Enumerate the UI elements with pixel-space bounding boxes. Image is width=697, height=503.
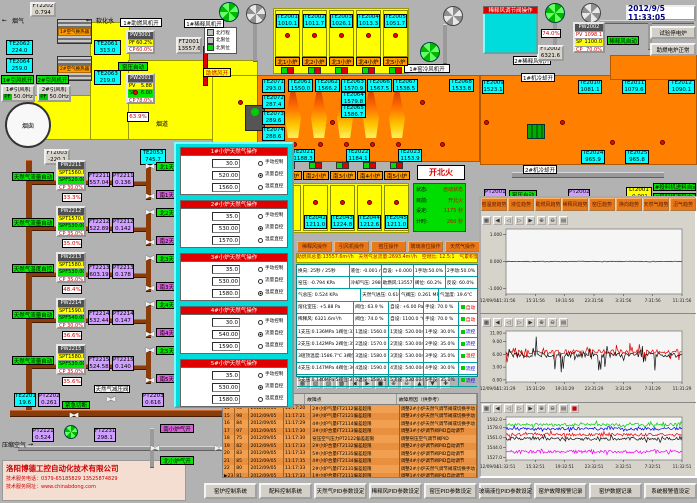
south-port-label: 南5小炉 [384, 171, 410, 180]
alarm-row[interactable]: 16842012/09/0511:17:294#小炉气量FT2114偏差超限调整… [223, 420, 477, 428]
pt2214-indicator: PT22140.147 [112, 310, 134, 325]
sensor-dot [484, 120, 489, 125]
grid-row: 气总压: 0.524 KPa天然气进压: 0.616 MPa气阀压: 0.261… [297, 289, 477, 301]
temperature-trend-chart: 1592.01578.01561.01544.01527.012/09/0411… [480, 414, 696, 478]
alarm-cell: 2012/09/05 [249, 443, 284, 451]
gas-mode-radio-label: 流量自控 [265, 277, 287, 285]
pt2203-indicator: PT22030.616 [142, 393, 164, 407]
gas-field-input[interactable]: 520.00 [212, 171, 240, 180]
alarm-cell: 2#小炉气量FT2112偏差超限 [311, 405, 399, 413]
alarm-row[interactable]: 17972012/09/0511:17:303#小炉合量FT2113偏差超限调整… [223, 428, 477, 436]
gas-mode-radio[interactable] [258, 373, 263, 378]
op-button[interactable]: 窑压操作 [371, 241, 406, 252]
grid-cell: 2流设: 530.00m³/h [389, 338, 424, 349]
gas-field-input[interactable]: 35.0 [212, 371, 240, 380]
grid-cell: 阀位: 74.0 % [354, 314, 389, 325]
gas-valve-icon[interactable]: ▶◀ [143, 330, 155, 338]
te2063-indicator: TE20631570.9 [341, 79, 366, 92]
sensor-dot [133, 90, 138, 95]
chart-toolbar-icon[interactable]: ▶ [526, 318, 535, 327]
sensor-dot [370, 142, 375, 147]
gas-mode-radio[interactable] [258, 226, 263, 231]
pw2213-faceplate: PW2213SPT1580.0SPF530.00CP35.0% [56, 252, 86, 283]
pipe [443, 24, 447, 64]
svg-text:7:31:29: 7:31:29 [645, 386, 661, 391]
svg-text:15:32:51: 15:32:51 [526, 464, 545, 469]
svg-text:23:31:29: 23:31:29 [585, 386, 604, 391]
gas-mode-radio[interactable] [258, 320, 263, 325]
gas-valve-icon[interactable]: ▶◀ [143, 208, 155, 216]
alarm-row[interactable]: 19822012/09/0511:17:332#小炉合量FT2132偏差超限调整… [223, 443, 477, 451]
chart-toolbar-icon[interactable]: ▷ [515, 404, 524, 413]
chart-toolbar-icon[interactable]: ▦ [482, 318, 491, 327]
alarm-row[interactable]: 21852012/09/0511:17:354#小炉合量FT2134偏差超限调整… [223, 458, 477, 466]
gas-panel-title: 4#小炉天然气操作 [180, 306, 288, 315]
port-indicator [309, 162, 322, 169]
grid-cell: 5手设: 35.0% [424, 375, 459, 386]
grid-cell: 1温设: 1560.0 ℃ [354, 326, 389, 337]
nav-button[interactable]: 稀释风PID参数设定 [369, 483, 422, 499]
op-button[interactable]: 玻璃液位操作 [408, 241, 443, 252]
nav-button[interactable]: 窑炉数据记录 [589, 483, 642, 499]
chart-toolbar-icon[interactable]: ▤ [559, 318, 568, 327]
alarm-cell: 11:17:33 [284, 473, 311, 479]
totals-bar: 助燃风总量:13557.6m³/h 天然气总流量:2693.4m³/h 空燃比:… [296, 253, 478, 263]
svg-text:6.00: 6.00 [492, 352, 502, 358]
fan-icon [443, 6, 463, 26]
alarm-cell: 调整5#小炉调节阀PID自动调节 [400, 450, 477, 458]
alarm-cell: 11:17:30 [284, 428, 311, 436]
nav-button[interactable]: 配料控制系统 [259, 483, 312, 499]
air-valve-icon[interactable]: ▶◀ [148, 444, 160, 452]
chart-toolbar-icon[interactable]: ◁ [504, 216, 513, 225]
gas-mode-radio[interactable] [258, 332, 263, 337]
svg-text:11.00: 11.00 [490, 331, 503, 337]
gas-mode-radio[interactable] [258, 344, 263, 349]
svg-text:7:32:51: 7:32:51 [645, 464, 661, 469]
trend-button[interactable]: 助燃风趋势 [535, 198, 561, 211]
trend-button[interactable]: 液位趋势 [508, 198, 534, 211]
te2001-indicator: TE20011010.1 [276, 14, 299, 28]
alarm-cell: 2012/09/05 [249, 435, 284, 443]
comb-air-on: 助燃风开 [203, 68, 231, 77]
alarm-cell: 18 [223, 435, 235, 443]
alarm-cell: 3#小炉合量FT2113偏差超限 [311, 428, 399, 436]
pipe [253, 20, 257, 62]
chart-toolbar-icon[interactable]: ⊖ [548, 404, 557, 413]
op-button[interactable]: 引风机操作 [334, 241, 369, 252]
comb-blower1-on: 1#助燃风机开 [120, 18, 162, 27]
svg-text:3.00: 3.00 [492, 365, 502, 371]
pt2121-indicator: PT21210.524 [32, 428, 54, 442]
grid-cell: 冷却气压: 298.1 KPa [350, 277, 382, 288]
chart-toolbar-icon[interactable]: ⊕ [537, 318, 546, 327]
port-indicator [390, 162, 403, 169]
alarm-row[interactable]: 22802012/09/0511:17:332#小炉气量FT2131偏差超限调整… [223, 465, 477, 473]
chart-toolbar-icon[interactable]: ⊕ [537, 216, 546, 225]
sensor-dot [660, 140, 665, 145]
port-indicator [335, 67, 348, 74]
chart-toolbar-icon[interactable]: ◀ [493, 216, 502, 225]
chart-toolbar-icon[interactable]: ◁ [504, 318, 513, 327]
chart-toolbar-icon[interactable]: ⊕ [537, 404, 546, 413]
gas-valve-icon[interactable]: ▶◀ [143, 346, 155, 354]
alarm-cell: 2#小炉合量FT2132偏差超限 [311, 443, 399, 451]
alarm-cell: 调整1#小炉调节阀PID自动调节 [400, 473, 477, 479]
id-fan1-on: 1#引风机开 [1, 75, 34, 84]
sensor-dot [344, 142, 349, 147]
test-electric-button[interactable]: 试验停电炉 [650, 26, 696, 39]
alarm-cell: 2#小炉气量FT2131偏差超限 [311, 465, 399, 473]
gas-valve-icon[interactable]: ▶◀ [143, 300, 155, 308]
gas-valve-icon[interactable]: ▶◀ [143, 238, 155, 246]
grid-cell: 5支压:0.140MPa 5阀位:35.6% [297, 375, 354, 386]
grid-row: 3碹顶温度:1586.7℃ 3阀位:48.4%3温设: 1580.0 ℃3流设:… [297, 350, 477, 362]
ft2215-indicator: FT2215524.58 [88, 356, 110, 371]
alarm-cell: 调整窑压空气调节阀PID [400, 435, 477, 443]
sensor-dot [339, 33, 344, 38]
feeder1-auto: 1#投料机进料自动 [653, 183, 696, 191]
alarm-row[interactable]: 20832012/09/0511:17:335#小炉合量FT2135偏差超限调整… [223, 450, 477, 458]
sensor-dot [313, 200, 318, 205]
sensor-dot [312, 33, 317, 38]
alarm-header-cell: 故障原因（供参考） [397, 394, 477, 404]
gas-mode-radio-label: 手动控制 [265, 212, 287, 220]
alarm-cell: 2012/09/05 [249, 473, 284, 479]
gas-field-input[interactable]: 540.00 [212, 330, 240, 339]
sensor-dot [420, 100, 425, 105]
chart-toolbar-icon[interactable]: ▤ [559, 404, 568, 413]
gas-valve-percent: 35.6% [62, 377, 82, 386]
firing-status-panel: 状态:自动状态目前:开北火设定:1175 秒计时:260 秒 [413, 183, 466, 232]
pt2211-indicator: PT22110.136 [112, 172, 134, 187]
grid-row: 稀释风: 6321.6m³/h阀位: 74.0 %自设: 1100.0 ℃手设:… [297, 314, 477, 326]
gas-field-input[interactable]: 1560.0 [212, 183, 240, 192]
gas-valve-percent: 35.0% [62, 239, 82, 248]
alarm-row[interactable]: ▶23812012/09/0511:17:331#小炉合量FT2111偏差超限调… [223, 473, 477, 479]
nav-button[interactable]: 窑炉故障报警记录 [534, 483, 587, 499]
sensor-dot [285, 33, 290, 38]
alarm-cell: 4#小炉合量FT2134偏差超限 [311, 458, 399, 466]
trend-button[interactable]: 窑温度趋势 [481, 198, 507, 211]
north-port-label: 北3小炉 [329, 57, 354, 66]
gas-mode-radio-label: 手动控制 [265, 159, 287, 167]
gas-panel-title: 5#小炉天然气操作 [180, 359, 288, 368]
svg-text:15:31:29: 15:31:29 [526, 386, 545, 391]
trend-button[interactable]: 窑压趋势 [589, 198, 615, 211]
ft2212-indicator: FT2212522.89 [88, 218, 110, 233]
reducer-valve-icon[interactable]: ▶◀ [104, 395, 116, 404]
chart-toolbar-icon[interactable]: ▦ [482, 216, 491, 225]
te2063-indicator: TE2063219.0 [94, 70, 121, 85]
ft2202-indicator: FT22020.794 [30, 2, 56, 17]
alarm-cell: 2012/09/05 [249, 450, 284, 458]
svg-text:1578.0: 1578.0 [487, 425, 502, 431]
gas-field-input[interactable]: 530.00 [212, 383, 240, 392]
nav-button[interactable]: 玻璃液位PID参数设定 [479, 483, 532, 499]
company-web: 技术服务网址：www.chinabdong.com [6, 483, 182, 491]
grid-cell: 1手设: 30.0% [424, 326, 459, 337]
pw2214-faceplate: PW2214SPT1590.0SPF540.00CP30.0% [56, 298, 86, 329]
te2066-indicator: TE20661567.5 [367, 79, 392, 92]
alarm-cell: 97 [235, 428, 249, 436]
grid-cell: 液位: -0.001 mm [350, 265, 382, 276]
datetime-display: 2012/9/5 11:33:05 [626, 5, 696, 21]
gas-field-input[interactable]: 1580.0 [212, 395, 240, 404]
gas-mode-radio-label: 温度直控 [265, 395, 287, 403]
grid-mode-chip: 自动 [459, 304, 477, 311]
gas-field-input[interactable]: 35.0 [212, 265, 240, 274]
sensor-dot [318, 142, 323, 147]
chart-toolbar-icon[interactable]: ◀ [493, 318, 502, 327]
alarm-cell: 11:17:33 [284, 443, 311, 451]
chimney-icon: 烟囱 [5, 102, 51, 148]
gas-valve-icon[interactable]: ▶◀ [143, 254, 155, 262]
svg-text:9.00: 9.00 [492, 339, 502, 345]
grid-cell: 自设: +6.00 Pa [389, 302, 424, 313]
port-indicator [281, 67, 294, 74]
gas-mode-radio-label: 温度直控 [265, 183, 287, 191]
trend-button[interactable]: 换向趋势 [616, 198, 642, 211]
grid-row: 熔化室压: +5.88 Pa阀位: 63.9 %自设: +6.00 Pa手设: … [297, 302, 477, 314]
chart-toolbar-icon[interactable]: ◁ [504, 404, 513, 413]
gas-valve-icon[interactable]: ▶◀ [143, 192, 155, 200]
svg-text:11:31:56: 11:31:56 [673, 298, 692, 303]
gas-field-input[interactable]: 530.00 [212, 277, 240, 286]
te2003-indicator: TE20031026.1 [330, 14, 353, 28]
north-port-label: 北2小炉 [302, 57, 327, 66]
svg-text:19:31:56: 19:31:56 [555, 298, 574, 303]
gas-panel-title: 1#小炉天然气操作 [180, 147, 288, 156]
grid-row: 窑压: -0.794 KPa冷却气压: 298.1 KPa助燃风:13557.6… [297, 277, 477, 289]
pt2215-indicator: PT22150.140 [112, 356, 134, 371]
gas-mode-radio[interactable] [258, 279, 263, 284]
grid-cell: 阀位: 63.9 % [354, 302, 389, 313]
gas-valve-percent: 36.6% [62, 331, 82, 340]
grid-cell: 气总压: 0.524 KPa [297, 289, 361, 300]
machine-cool1-on: 1#机冷却开 [521, 73, 555, 82]
chart-toolbar-icon[interactable]: ▷ [515, 216, 524, 225]
grid-cell: 1支压:0.136MPa 1阀位:33.3% [297, 326, 354, 337]
grid-mode-chip: 温控 [459, 352, 477, 359]
north-air-on: 北小炉气开 [160, 456, 194, 465]
chart-toolbar-icon[interactable]: ▶ [526, 216, 535, 225]
alarm-cell: 11:17:21 [284, 413, 311, 421]
gas-reducer-valve-label: 天然气减压阀 [94, 385, 130, 393]
port-indicator [308, 67, 321, 74]
gas-field-input[interactable]: 30.0 [212, 318, 240, 327]
gas-mode-radio[interactable] [258, 267, 263, 272]
gas-mode-radio[interactable] [258, 214, 263, 219]
alarm-cell: 11:17:33 [284, 450, 311, 458]
svg-text:23:32:51: 23:32:51 [585, 464, 604, 469]
pw3001-faceplate: PW3001PF60.2%CP60.0% [126, 30, 155, 54]
chart-toolbar-icon[interactable]: ▦ [482, 404, 491, 413]
alarm-cell: 20 [223, 450, 235, 458]
gas-field-input[interactable]: 1590.0 [212, 342, 240, 351]
grid-cell: 4流设: 540.00m³/h [389, 363, 424, 374]
chart-toolbar-icon[interactable]: ▷ [515, 318, 524, 327]
nav-button[interactable]: 窑压PID参数设定 [424, 483, 477, 499]
gas-mode-radio-label: 流量自控 [265, 224, 287, 232]
grid-cell: 2支压:0.142MPa 2阀位:35.0% [297, 338, 354, 349]
gas-mode-radio[interactable] [258, 291, 263, 296]
ft2214-indicator: FT2214532.44 [88, 310, 110, 325]
alarm-cell: 调整3#小炉天然气调节阀或切换手动 [400, 413, 477, 421]
te2071-indicator: TE2071293.0 [262, 79, 285, 93]
grid-cell: 4手设: 30.0% [424, 363, 459, 374]
gas-mode-radio[interactable] [258, 185, 263, 190]
gas-mode-radio[interactable] [258, 173, 263, 178]
gas-field-input[interactable]: 1580.0 [212, 289, 240, 298]
pw2212-faceplate: PW2212SPT1570.0SPF530.00CP35.0% [56, 206, 86, 237]
nav-button[interactable]: 天然气PID参数设定 [314, 483, 367, 499]
gas-mode-label: 天然气流量自动 [12, 218, 54, 227]
te2064-indicator: TE20641579.8 [341, 92, 366, 105]
gas-valve-icon[interactable]: ▶◀ [143, 376, 155, 384]
chart-stop-icon[interactable]: ■ [570, 404, 579, 413]
svg-text:11:31:56: 11:31:56 [497, 298, 516, 303]
gas-mode-radio-label: 流量自控 [265, 383, 287, 391]
gas-field-input[interactable]: 35.0 [212, 212, 240, 221]
te2061-indicator: TE2061313.0 [94, 40, 121, 55]
grid-row: 5支压:0.140MPa 5阀位:35.6%5温设: 1580.0 ℃5流设: … [297, 375, 477, 387]
sensor-dot [394, 200, 399, 205]
grid-cell: 2手设: 35.0% [424, 338, 459, 349]
gas-mode-label: 天然气流量自动 [12, 310, 54, 319]
gas-field-input[interactable]: 30.0 [212, 159, 240, 168]
te2073-indicator: TE2073289.6 [262, 111, 285, 125]
svg-text:7:31:56: 7:31:56 [645, 298, 661, 303]
op-button[interactable]: 天然气操作 [445, 241, 480, 252]
chart-toolbar-icon[interactable]: ⊖ [548, 216, 557, 225]
kiln-pressure-auto: 窑压自动 [118, 62, 148, 71]
id-fan2-speed: 2#引风机PF 50.0Hz [37, 85, 71, 102]
chart-toolbar-icon[interactable]: ▤ [559, 216, 568, 225]
chart-toolbar-icon[interactable]: ▶ [526, 404, 535, 413]
chart-toolbar-icon[interactable]: ◀ [493, 404, 502, 413]
alarm-row[interactable]: 18752012/09/0511:17:30窑压空气压力PT2122偏差超限调整… [223, 435, 477, 443]
alarm-cell: 调整4#小炉调节阀PID自动调节 [400, 458, 477, 466]
te2010-indicator: TE20101081.1 [578, 80, 602, 94]
grid-cell: 助燃风:13557.6m³/h [382, 277, 414, 288]
trend-button[interactable]: 沼气趋势 [670, 198, 696, 211]
trend-button[interactable]: 稀释风趋势 [562, 198, 588, 211]
gas-mode-radio[interactable] [258, 161, 263, 166]
te2022-indicator: TE20221184.1 [346, 149, 370, 162]
te2043-indicator: TE20431224.8 [331, 215, 354, 229]
alarm-cell: 5#小炉合量FT2135偏差超限 [311, 450, 399, 458]
air-pump-icon [64, 425, 78, 439]
svg-text:0.00: 0.00 [492, 377, 502, 383]
op-button[interactable]: 稀释风操作 [297, 241, 332, 252]
south-port-label: 南2小炉 [303, 171, 329, 180]
aux-electric-button[interactable]: 助燃电炉正常 [650, 43, 696, 56]
pressure-trend-chart: 11.009.006.003.000.0012/09/0411:31:2915:… [480, 328, 696, 400]
gas-mode-radio[interactable] [258, 397, 263, 402]
sensor-dot [366, 33, 371, 38]
alarm-cell: 调整4#小炉天然气调节阀或切换手动 [400, 420, 477, 428]
furnace-body [610, 55, 697, 80]
gas-mode-label: 天然气温度自控 [12, 264, 54, 273]
north-port-label: 北5小炉 [383, 57, 408, 66]
alarm-cell: 调整2#小炉调节阀PID自动调节 [400, 443, 477, 451]
grid-cell: 手设: 70.0 % [424, 302, 459, 313]
gas-field-input[interactable]: 530.00 [212, 224, 240, 233]
gas-valve-percent: 33.3% [62, 193, 82, 202]
pipe [600, 20, 694, 24]
reversal-limit-legend: 北行程北限位北到位 [204, 27, 237, 54]
ft2231-indicator: FT2231298.1 [94, 428, 116, 442]
grid-cell: 熔化室压: +5.88 Pa [297, 302, 354, 313]
id-fan1-speed: 1#引风机PF 50.0Hz [1, 85, 35, 102]
te2068-indicator: TE20681533.8 [449, 79, 474, 92]
trend-button[interactable]: 天然气趋势 [643, 198, 669, 211]
te2024-indicator: TE2024965.9 [581, 150, 605, 164]
gas-pipe [26, 160, 32, 417]
port-indicator [389, 67, 402, 74]
ft2001-indicator: FT200113557.6 [176, 37, 202, 54]
grid-cell: 1流设: 520.00m³/h [389, 326, 424, 337]
nav-button[interactable]: 系统报警值设定 [644, 483, 697, 499]
gas-mode-radio-label: 流量自控 [265, 171, 287, 179]
grid-cell: 换向: 25秒 / 25秒 [297, 265, 350, 276]
grid-cell: 手设: 70.0 % [424, 314, 459, 325]
grid-cell: 5流设: 530.00m³/h [389, 375, 424, 386]
alarm-cell: 2012/09/05 [249, 465, 284, 473]
gas-valve-icon[interactable]: ▶◀ [143, 162, 155, 170]
gas-mode-radio[interactable] [258, 238, 263, 243]
grid-mode-chip: 流控 [459, 377, 477, 384]
grid-cell: 稀释风: 6321.6m³/h [297, 314, 354, 325]
alarm-cell: 2012/09/05 [249, 413, 284, 421]
port-indicator [363, 162, 376, 169]
gas-mode-radio[interactable] [258, 385, 263, 390]
alarm-cell: 17 [223, 428, 235, 436]
emergency-valve-icon[interactable]: ▶◀ [66, 411, 80, 420]
grid-cell: 1手动:50.0% 自动 [414, 265, 446, 276]
alarm-cell: 80 [235, 465, 249, 473]
grid-row: 换向: 25秒 / 25秒液位: -0.001 mm自设: +0.000 mm1… [297, 265, 477, 277]
gas-mode-radio-label: 流量自控 [265, 330, 287, 338]
svg-text:19:32:51: 19:32:51 [555, 464, 574, 469]
te2025-indicator: TE2025965.8 [625, 150, 649, 164]
nav-button[interactable]: 窑炉控制系统 [204, 483, 257, 499]
alarm-row[interactable]: 15982012/09/0511:17:213#小炉气量FT2121偏差超限调整… [223, 413, 477, 421]
gas-field-input[interactable]: 1570.0 [212, 236, 240, 245]
svg-text:-1.000: -1.000 [488, 286, 502, 292]
alarm-cell: 75 [235, 435, 249, 443]
grid-cell: 3流设: 530.00m³/h [389, 350, 424, 361]
svg-text:1592.0: 1592.0 [487, 417, 502, 423]
gas-valve-icon[interactable]: ▶◀ [143, 284, 155, 292]
alarm-cell: 4#小炉气量FT2114偏差超限 [311, 420, 399, 428]
chart-toolbar-icon[interactable]: ⊖ [548, 318, 557, 327]
scada-main-screen: 2012/9/5 11:33:05 洛阳博德工控自动化技术有限公司 技术服务电话… [0, 0, 697, 503]
svg-text:1527.0: 1527.0 [487, 455, 502, 461]
grid-cell: 阀位: 60.2% [414, 277, 446, 288]
machine-cool2-on: 2#机冷却开 [523, 165, 557, 174]
port-indicator [336, 162, 349, 169]
pt2213-indicator: PT22130.178 [112, 264, 134, 279]
alarm-cell: 84 [235, 420, 249, 428]
alarm-cell: 3#小炉气量FT2121偏差超限 [311, 413, 399, 421]
te2072-indicator: TE2072287.4 [262, 95, 285, 109]
pt2202-indicator: PT22020.261 [38, 393, 60, 407]
te2065-indicator: TE20651586.7 [341, 105, 366, 118]
gas-mode-radio-label: 温度直控 [265, 289, 287, 297]
gas-mode-radio-label: 手动控制 [265, 265, 287, 273]
